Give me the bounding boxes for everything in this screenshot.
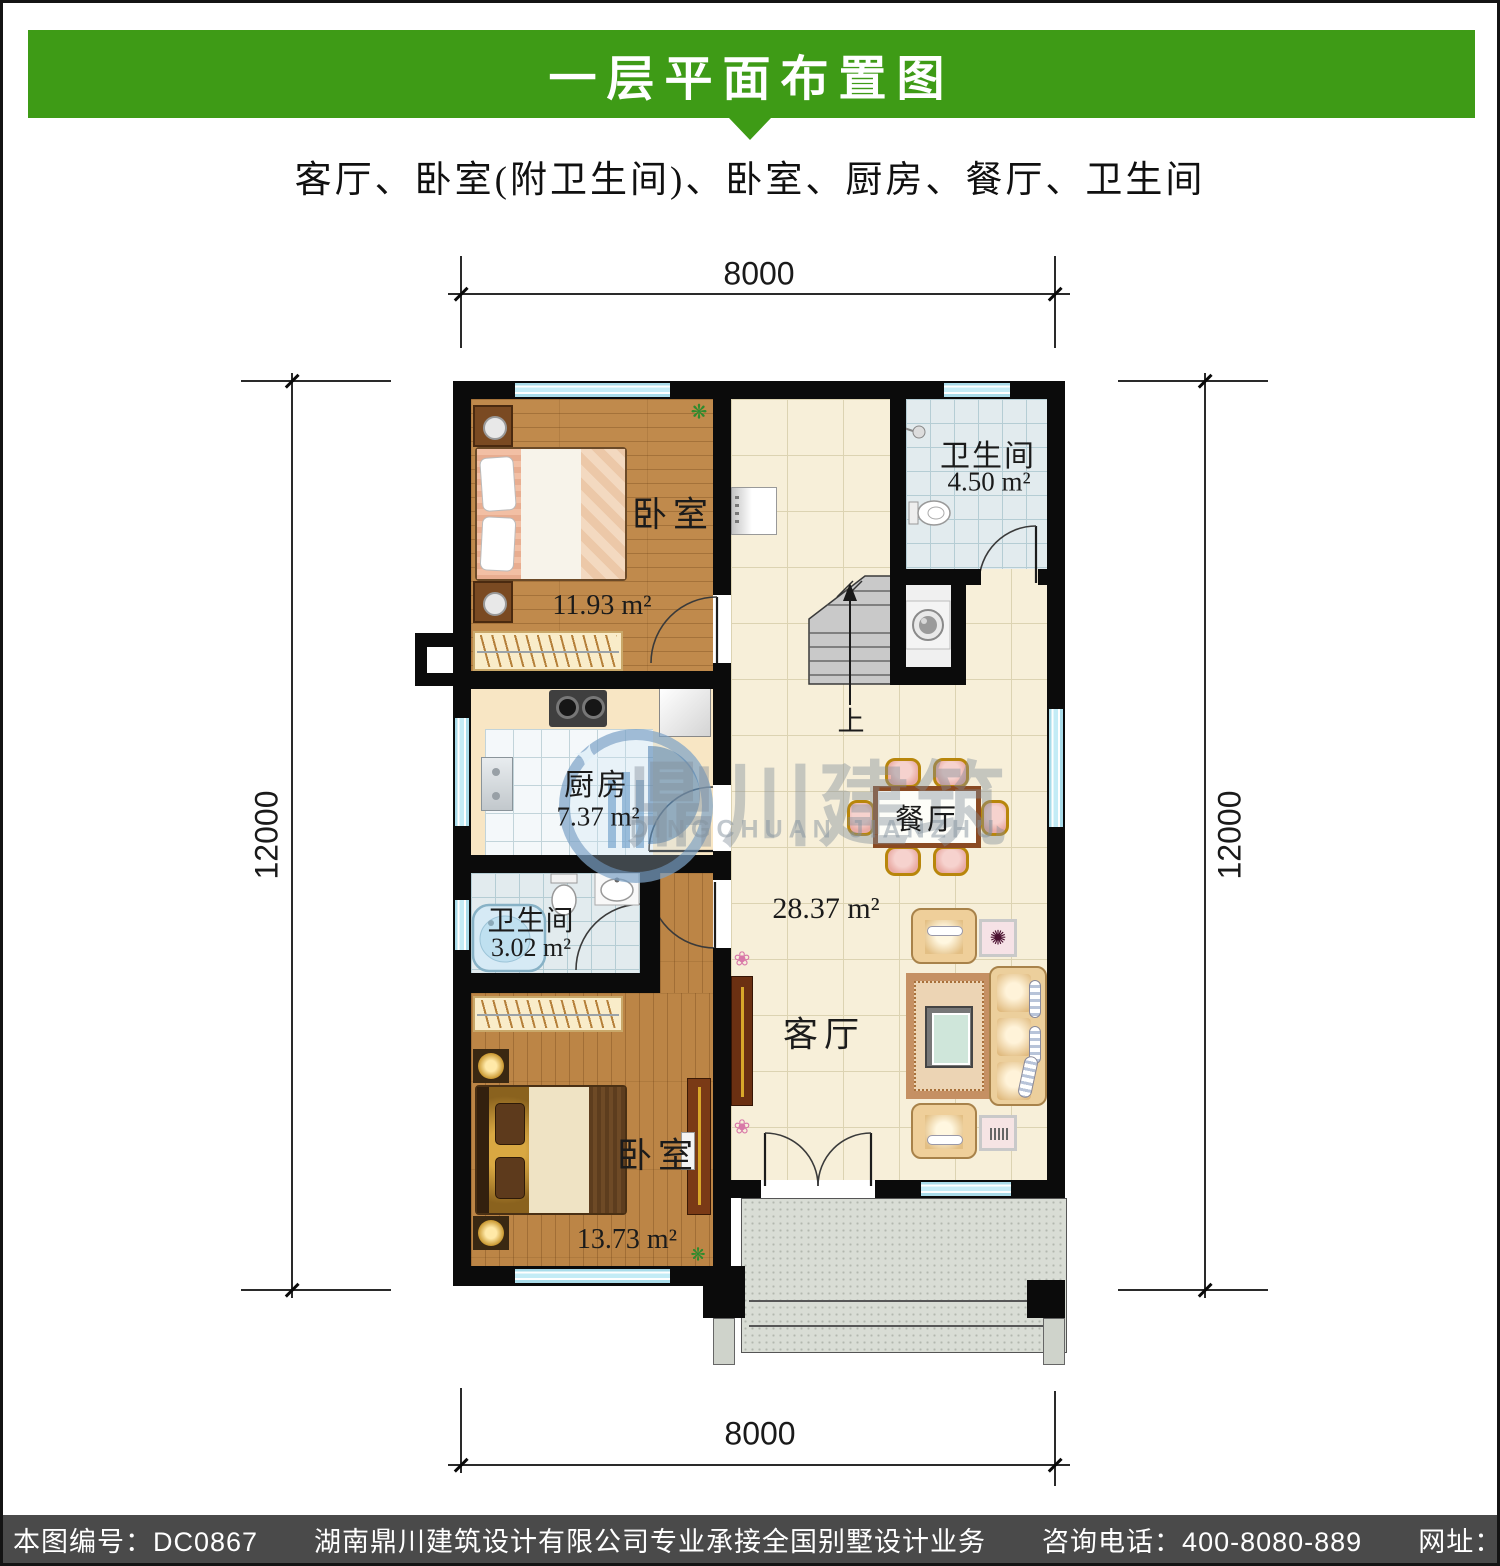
wall [453,855,731,873]
wall [890,569,981,585]
area-label-bedroom-top: 11.93 m² [552,590,651,622]
page: 一层平面布置图 客厅、卧室(附卫生间)、卧室、厨房、餐厅、卫生间 [0,0,1500,1566]
wall [713,948,731,1266]
area-label-bathroom-small: 3.02 m² [491,933,571,963]
wall [713,381,731,595]
wall [890,381,906,585]
area-label-living: 28.37 m² [772,892,879,926]
wall [453,973,660,993]
room-label-living: 客厅 [783,1007,865,1058]
toilet [909,502,918,524]
window [921,1182,1011,1196]
floor-plan: ❋ [3,3,1497,1563]
window [515,1269,670,1283]
window [455,718,469,826]
window [944,383,1010,397]
room-label-dining: 餐厅 [895,796,959,838]
window [1049,709,1063,827]
wall [1038,569,1065,585]
window [515,383,670,397]
wall [453,381,471,1286]
stairs-up-label: 上 [838,700,865,739]
wall [890,585,906,685]
porch-column [1027,1280,1065,1318]
shower-icon [913,426,925,438]
area-label-bedroom-bottom: 13.73 m² [577,1224,677,1256]
toilet [551,874,577,883]
buttress-notch [427,647,453,673]
area-label-kitchen: 7.37 m² [556,802,639,833]
wall [453,671,731,689]
window [455,900,469,950]
room-label-bedroom-top: 卧室 [632,487,714,538]
room-label-kitchen: 厨房 [564,760,630,804]
area-label-bathroom-top: 4.50 m² [947,467,1030,498]
room-label-bedroom-bottom: 卧室 [617,1128,699,1179]
plan-linework [3,3,1500,1566]
porch-column [703,1280,745,1318]
